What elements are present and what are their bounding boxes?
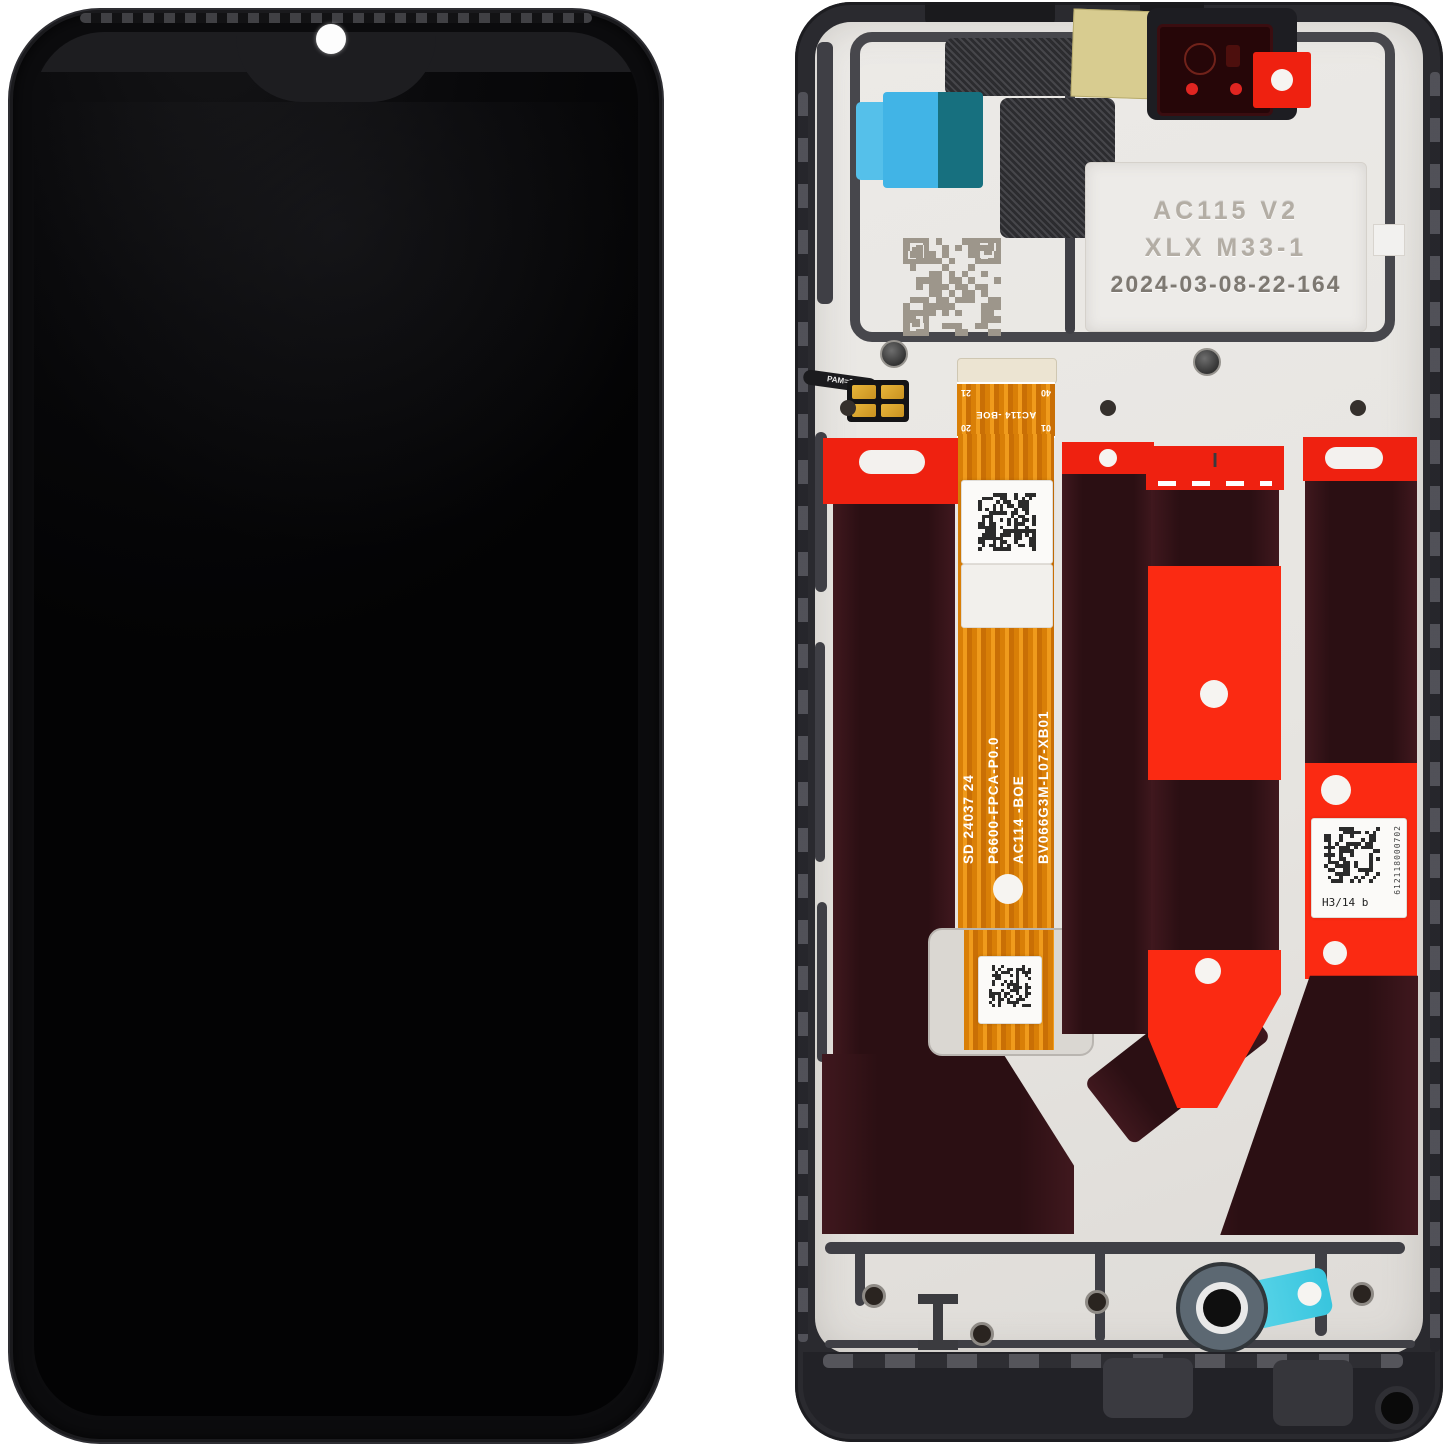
screw-hole-b2 bbox=[970, 1322, 994, 1346]
screw-hole-b1 bbox=[862, 1284, 886, 1308]
front-display-panel bbox=[8, 8, 664, 1444]
red-adhesive-patch-top bbox=[1253, 52, 1311, 108]
header-i-marking: I bbox=[1146, 450, 1284, 473]
plate-dot-3 bbox=[1350, 400, 1366, 416]
camera-sensor-bar bbox=[1226, 45, 1240, 67]
blue-pull-tab bbox=[883, 92, 983, 188]
kapton-tape bbox=[1070, 9, 1157, 100]
gasket-left bbox=[817, 42, 833, 304]
frame-right-clips bbox=[1430, 72, 1440, 1352]
datamatrix-label-2 bbox=[978, 956, 1042, 1024]
panel-strip-3b bbox=[1151, 780, 1279, 950]
flex-white-dot bbox=[993, 874, 1023, 904]
engraved-info-plate: AC115 V2 XLX M33-1 2024-03-08-22-164 bbox=[1085, 162, 1367, 332]
back-display-module: AC115 V2 XLX M33-1 2024-03-08-22-164 PAM… bbox=[795, 2, 1443, 1442]
lcd-screen-front bbox=[34, 32, 638, 1416]
connector-pin-40: 40 bbox=[1041, 388, 1051, 398]
panel-strip-2 bbox=[1062, 474, 1154, 1034]
serial-label: H3/14 b 612118000702 bbox=[1311, 818, 1407, 918]
plate-dot-2 bbox=[1100, 400, 1116, 416]
screw-hole-b3 bbox=[1085, 1290, 1109, 1314]
white-tab bbox=[1373, 224, 1405, 256]
etched-qr-code bbox=[903, 238, 1001, 336]
red-dot-left bbox=[1186, 83, 1198, 95]
screw-hole-top-left bbox=[880, 340, 908, 368]
bottom-boss-1 bbox=[1103, 1358, 1193, 1418]
panel-strip-4 bbox=[1305, 481, 1417, 763]
connector-pin-21: 21 bbox=[961, 388, 971, 398]
gasket-bottom-2 bbox=[825, 1340, 1415, 1348]
blank-label bbox=[961, 564, 1053, 628]
adhesive-strip-2-header bbox=[1062, 442, 1154, 474]
engraved-line-2: XLX M33-1 bbox=[1145, 234, 1307, 263]
product-photo: AC115 V2 XLX M33-1 2024-03-08-22-164 PAM… bbox=[0, 0, 1445, 1445]
screw-hole-top-right bbox=[1193, 348, 1221, 376]
gasket-seg-2 bbox=[815, 642, 825, 862]
i-beam-marking bbox=[918, 1294, 958, 1350]
header-dashes bbox=[1158, 481, 1272, 486]
engraved-line-1: AC115 V2 bbox=[1153, 197, 1299, 226]
datamatrix-label-1 bbox=[961, 480, 1053, 564]
connector-pin-20: 20 bbox=[961, 423, 971, 433]
grommet-ring bbox=[1176, 1262, 1268, 1354]
bottom-boss-2 bbox=[1273, 1360, 1353, 1426]
front-camera-hole-sticker bbox=[316, 24, 346, 54]
adhesive-strip-3-mid bbox=[1148, 566, 1281, 780]
panel-strip-3a bbox=[1151, 490, 1279, 566]
gold-contact-pads bbox=[847, 380, 909, 422]
bottom-mic-hole bbox=[1375, 1386, 1419, 1430]
connector-label: AC114 -BOE bbox=[957, 409, 1055, 420]
red-dot-right bbox=[1230, 83, 1242, 95]
camera-lens-ring bbox=[1184, 43, 1216, 75]
serial-label-number: 612118000702 bbox=[1393, 825, 1402, 895]
adhesive-strip-3-header: I bbox=[1146, 446, 1284, 490]
adhesive-strip-1-header bbox=[823, 438, 960, 504]
screen-reflection bbox=[34, 102, 638, 1416]
adhesive-strip-4-header bbox=[1303, 437, 1417, 481]
adhesive-strip-4-lower: H3/14 b 612118000702 bbox=[1305, 763, 1417, 979]
frame-clip-strip bbox=[80, 13, 592, 23]
engraved-line-3: 2024-03-08-22-164 bbox=[1111, 271, 1342, 298]
bottom-frame bbox=[803, 1352, 1435, 1434]
plate-dot-1 bbox=[840, 400, 856, 416]
flex-connector-stiffener bbox=[957, 358, 1057, 384]
serial-label-text: H3/14 b bbox=[1322, 896, 1368, 909]
connector-pin-01: 01 bbox=[1041, 423, 1051, 433]
flex-connector: 01 20 AC114 -BOE 40 21 bbox=[957, 382, 1055, 438]
gasket-seg-3 bbox=[817, 902, 827, 1062]
screw-hole-b4 bbox=[1350, 1282, 1374, 1306]
frame-left-clips bbox=[798, 92, 808, 1342]
